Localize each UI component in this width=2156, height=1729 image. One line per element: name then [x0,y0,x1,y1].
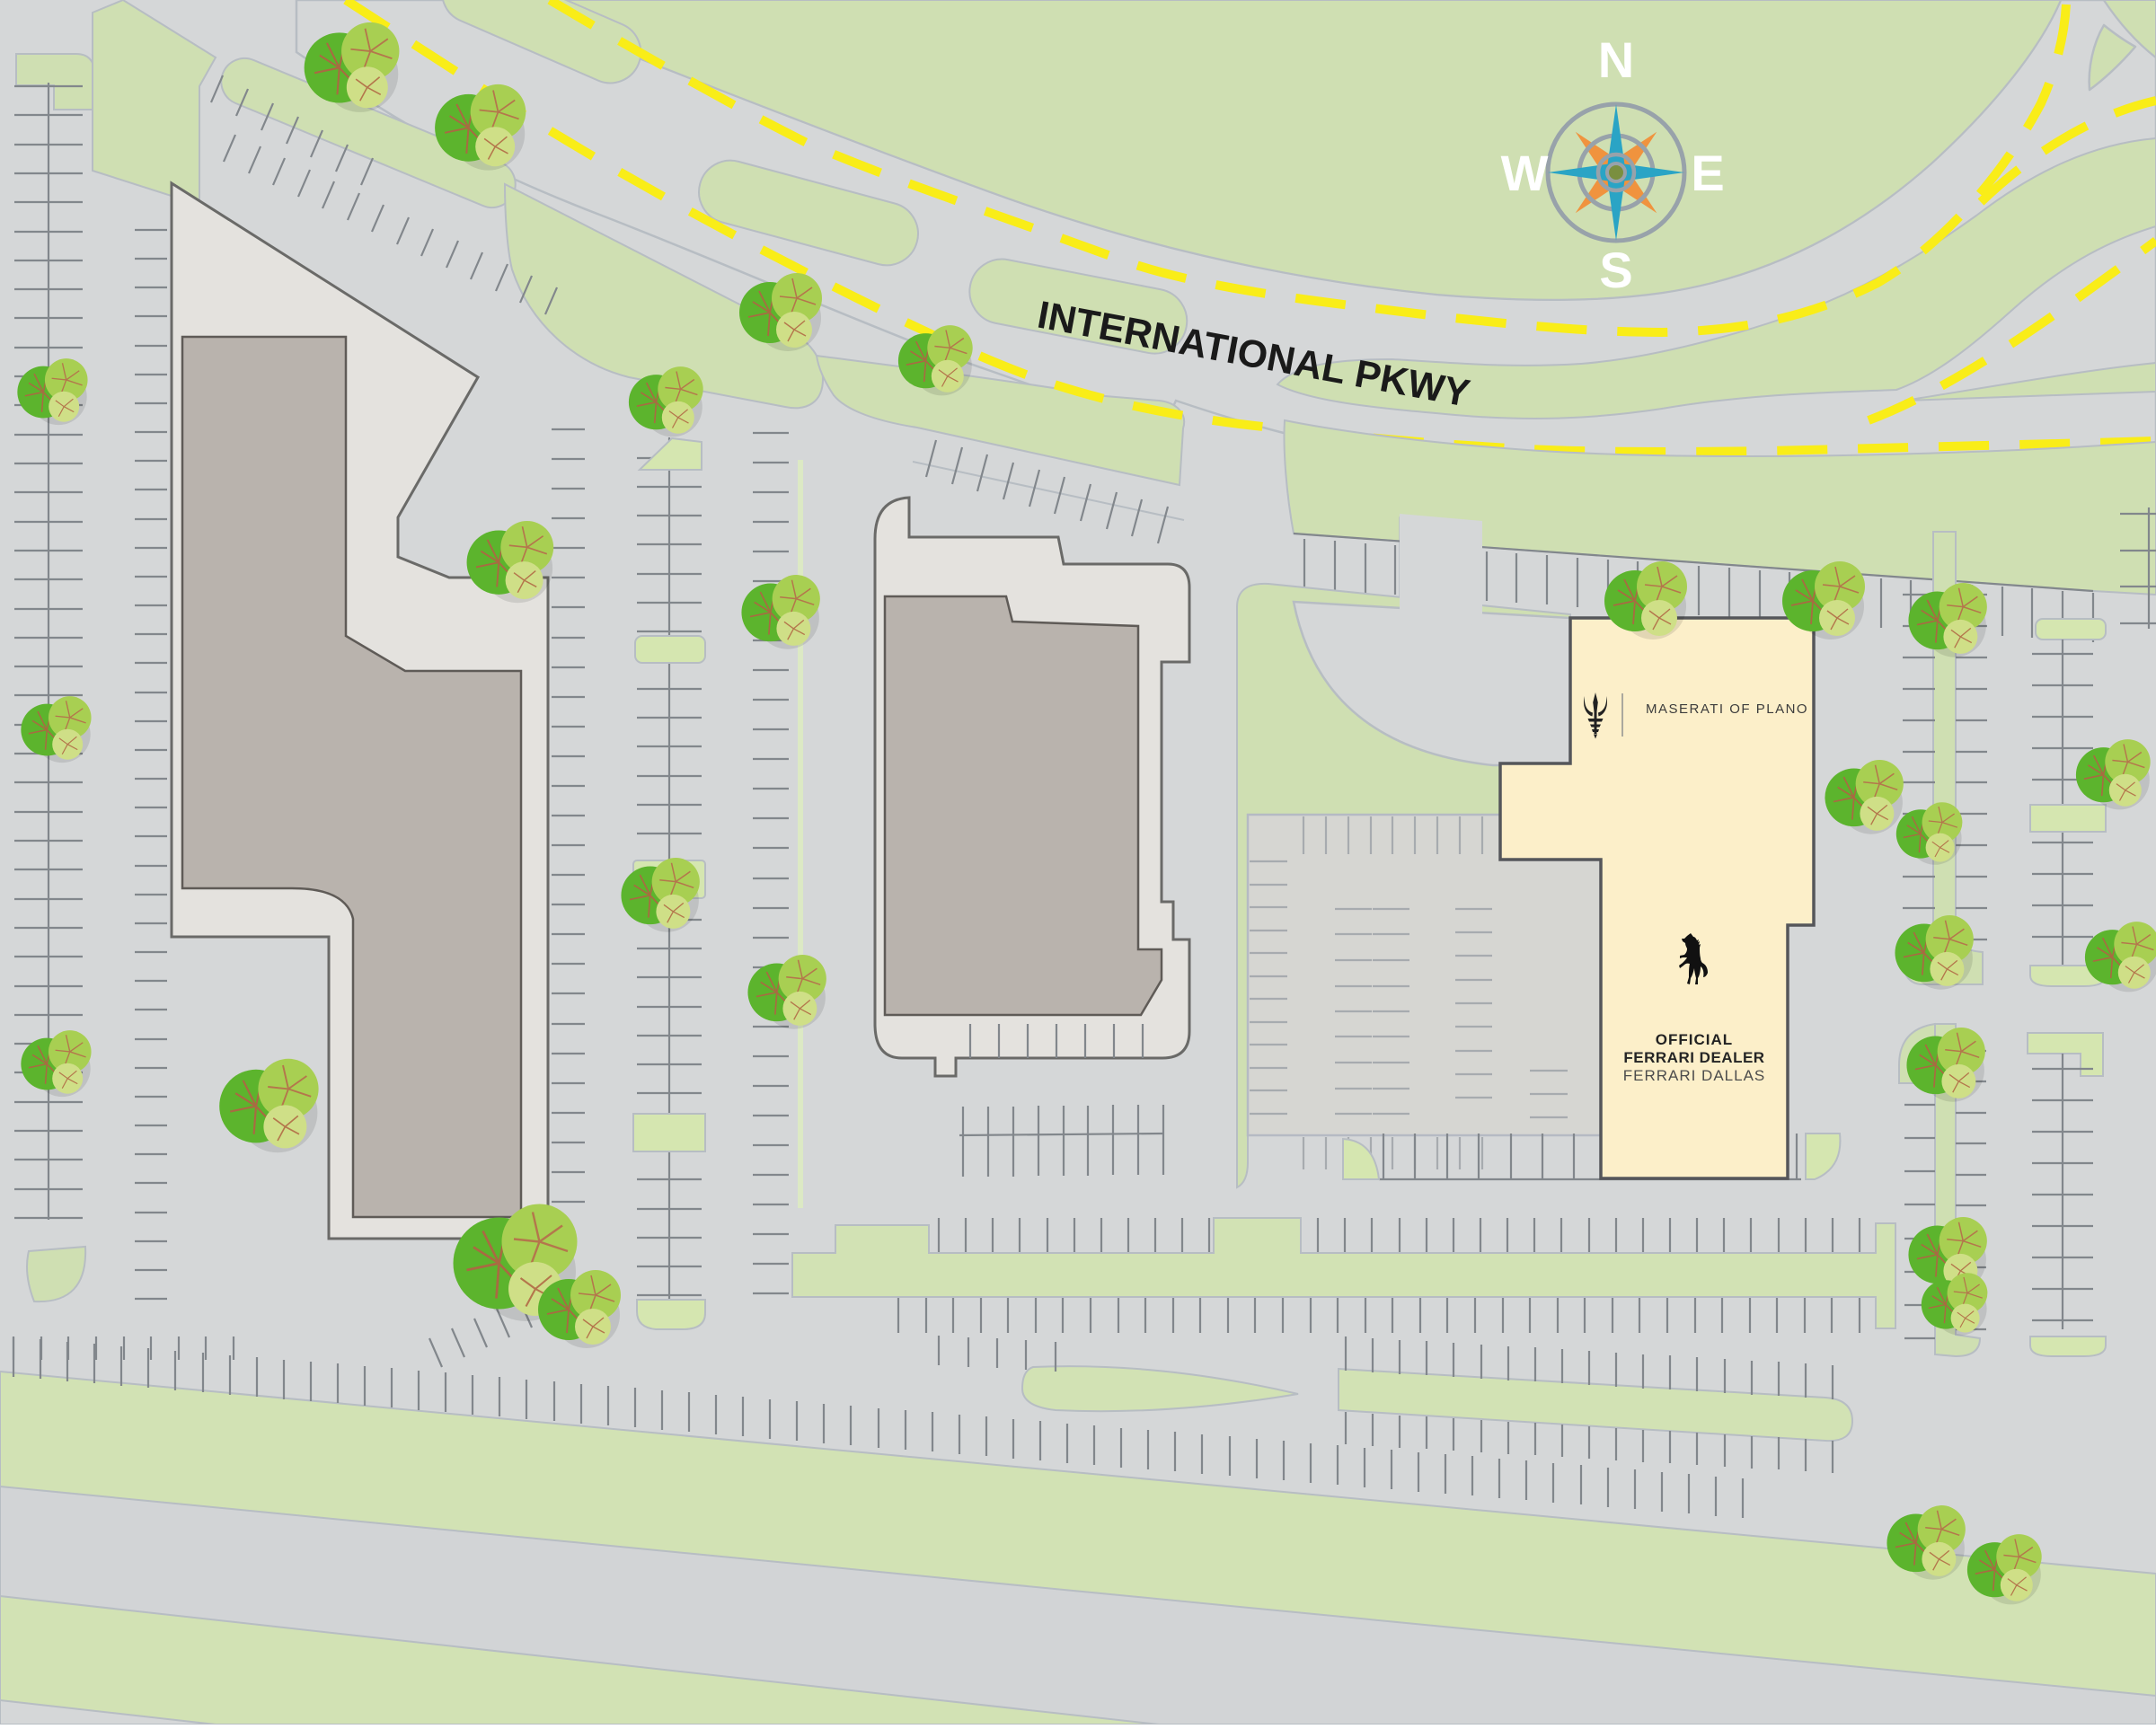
svg-text:FERRARI DALLAS: FERRARI DALLAS [1623,1067,1766,1084]
svg-text:E: E [1691,145,1724,201]
svg-text:FERRARI DEALER: FERRARI DEALER [1623,1049,1764,1066]
svg-text:W: W [1501,145,1549,201]
svg-text:MASERATI OF PLANO: MASERATI OF PLANO [1646,701,1808,717]
svg-text:S: S [1599,242,1632,298]
svg-text:OFFICIAL: OFFICIAL [1656,1031,1733,1048]
svg-text:N: N [1598,31,1634,88]
